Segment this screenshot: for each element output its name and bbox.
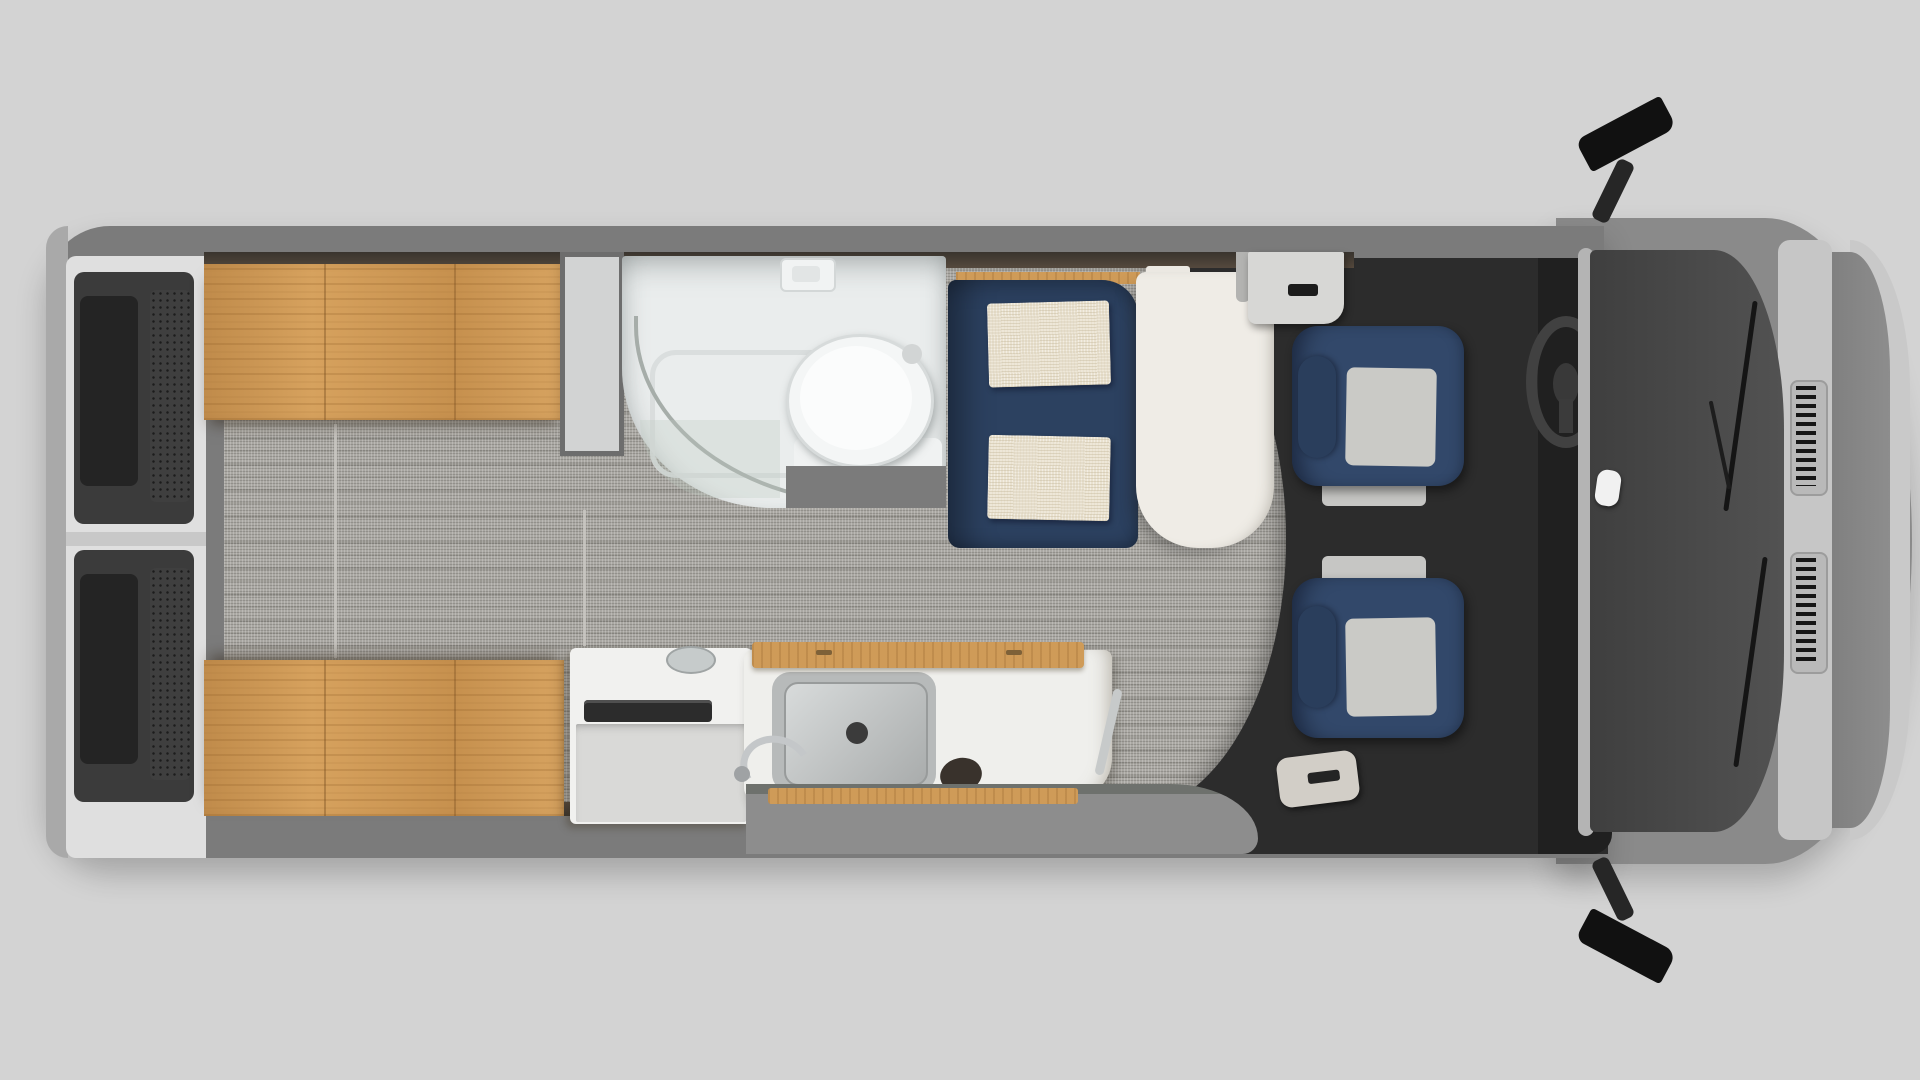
- steering-spoke: [1559, 399, 1573, 433]
- sofa: [948, 280, 1138, 548]
- door-perforated-panel: [150, 568, 190, 780]
- driver-headrest: [1298, 606, 1336, 708]
- cooktop-front-panel: [576, 724, 746, 822]
- door-perforated-panel: [150, 290, 190, 502]
- rear-door-seam: [66, 532, 206, 546]
- toilet-lid: [800, 346, 912, 450]
- floor-track-rail: [334, 424, 337, 658]
- rear-door-card-top: [74, 272, 194, 524]
- cowl-vent: [1790, 552, 1828, 674]
- bathroom-partition-wall: [786, 466, 946, 508]
- bed-plank-seam: [324, 660, 326, 816]
- driver-seat-insert: [1345, 617, 1437, 717]
- hood: [1828, 252, 1890, 828]
- seatbelt-slot: [1288, 284, 1318, 296]
- passenger-headrest: [1298, 356, 1336, 458]
- console-slot: [1307, 769, 1340, 784]
- bed-plank-seam: [324, 264, 326, 420]
- toilet-flush-button: [902, 344, 922, 364]
- passenger-seat: [1292, 326, 1464, 486]
- camper-van-floorplan: [0, 0, 1920, 1080]
- b-pillar-trim: [1248, 252, 1344, 324]
- cooktop-lid: [666, 646, 716, 674]
- cooktop-vent-slot: [584, 700, 712, 722]
- passenger-seat-insert: [1345, 367, 1437, 467]
- wiper: [1733, 557, 1767, 768]
- sink-drain: [846, 722, 868, 744]
- step-console: [1275, 749, 1360, 808]
- faucet-base: [734, 766, 750, 782]
- sofa-cushion: [987, 300, 1111, 387]
- wardrobe: [560, 252, 624, 456]
- step-wood-sill: [768, 788, 1078, 804]
- vent-slats: [1796, 386, 1816, 486]
- cowl-panel: [1778, 240, 1832, 840]
- counter-flap: [752, 642, 1084, 668]
- windshield: [1590, 250, 1784, 832]
- galley-cabinet: [744, 650, 1112, 800]
- wiper-arm: [1709, 401, 1732, 490]
- rear-doors: [66, 256, 206, 858]
- door-window-panel: [80, 296, 138, 486]
- vent-slats: [1796, 558, 1816, 664]
- floor-track-rail: [583, 510, 586, 646]
- bed-plank-seam: [454, 660, 456, 816]
- cowl-vent: [1790, 380, 1828, 496]
- driver-seat: [1292, 578, 1464, 738]
- sofa-cushion: [987, 435, 1111, 522]
- shower-bracket: [780, 258, 836, 292]
- bed-plank-seam: [454, 264, 456, 420]
- rear-bumper: [46, 226, 68, 858]
- rear-door-card-bottom: [74, 550, 194, 802]
- cooktop-cabinet: [570, 648, 752, 824]
- door-window-panel: [80, 574, 138, 764]
- shower-bracket-slot: [792, 266, 820, 282]
- bed-bottom: [204, 660, 564, 816]
- flap-hinge: [816, 650, 832, 655]
- bed-top: [204, 264, 564, 420]
- flap-hinge: [1006, 650, 1022, 655]
